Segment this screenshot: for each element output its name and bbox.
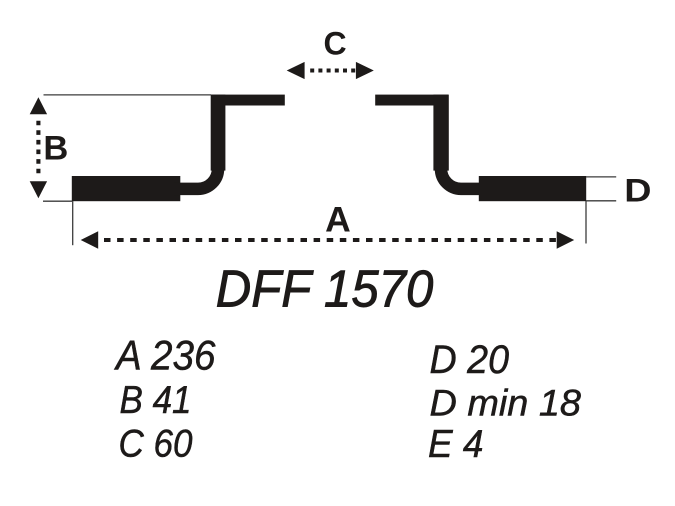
svg-text:A 236: A 236 xyxy=(113,331,216,378)
svg-text:D 20: D 20 xyxy=(430,338,510,382)
svg-text:D: D xyxy=(624,173,651,209)
svg-text:D min 18: D min 18 xyxy=(430,382,582,423)
svg-text:DFF 1570: DFF 1570 xyxy=(216,260,434,318)
svg-text:B: B xyxy=(43,129,68,167)
svg-text:C: C xyxy=(323,26,346,62)
svg-text:E 4: E 4 xyxy=(428,423,484,466)
svg-text:B 41: B 41 xyxy=(120,379,192,422)
svg-text:C 60: C 60 xyxy=(119,423,193,466)
svg-text:A: A xyxy=(325,199,351,239)
